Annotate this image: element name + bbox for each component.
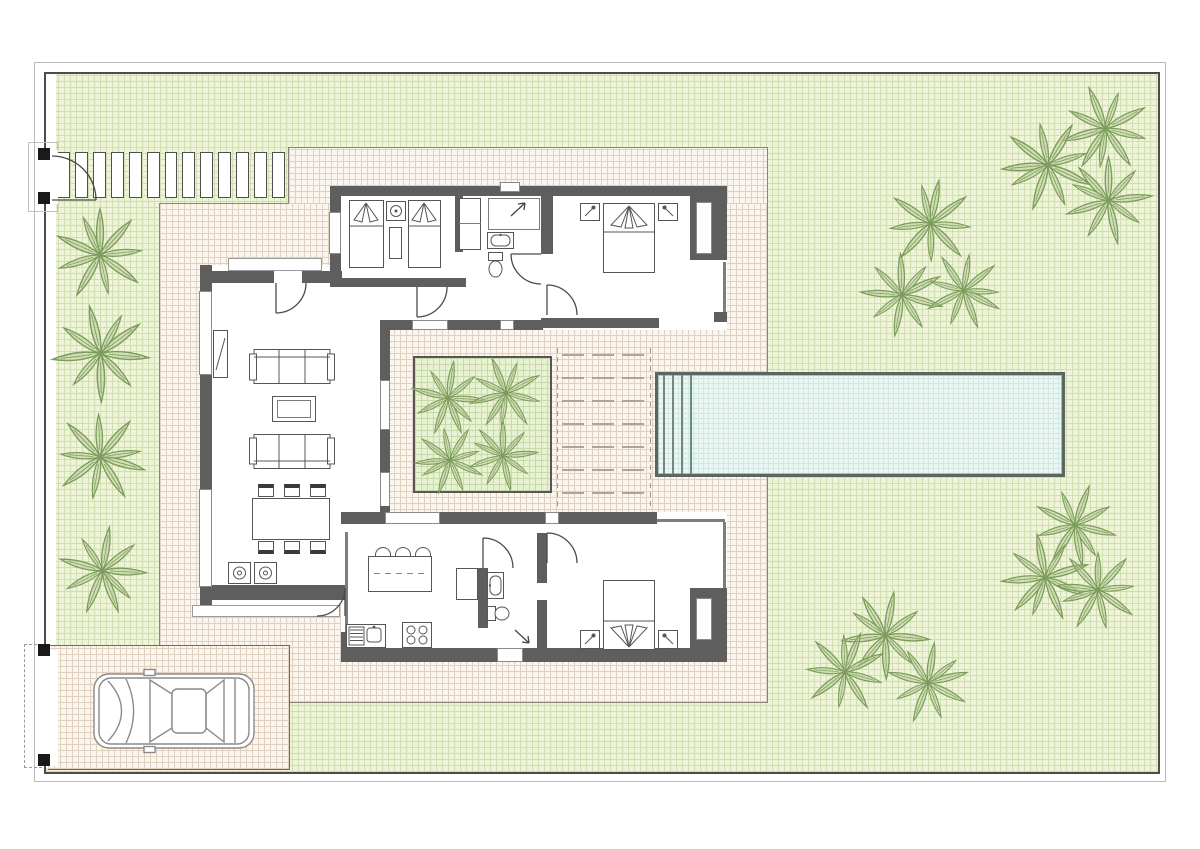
pedestrian-gate-arc (52, 156, 96, 200)
bathroom1-door-arc (511, 254, 541, 284)
bedroom3-door-arc (547, 285, 577, 315)
entry-door-arc (276, 283, 306, 313)
kitchen-door-arc (317, 588, 345, 616)
door-swing-arcs (0, 0, 1200, 849)
bathroom2-door-arc (483, 538, 513, 568)
master-door-arc (547, 533, 577, 563)
hall-door-arc (417, 287, 447, 317)
floor-plan-drawing (0, 0, 1200, 849)
